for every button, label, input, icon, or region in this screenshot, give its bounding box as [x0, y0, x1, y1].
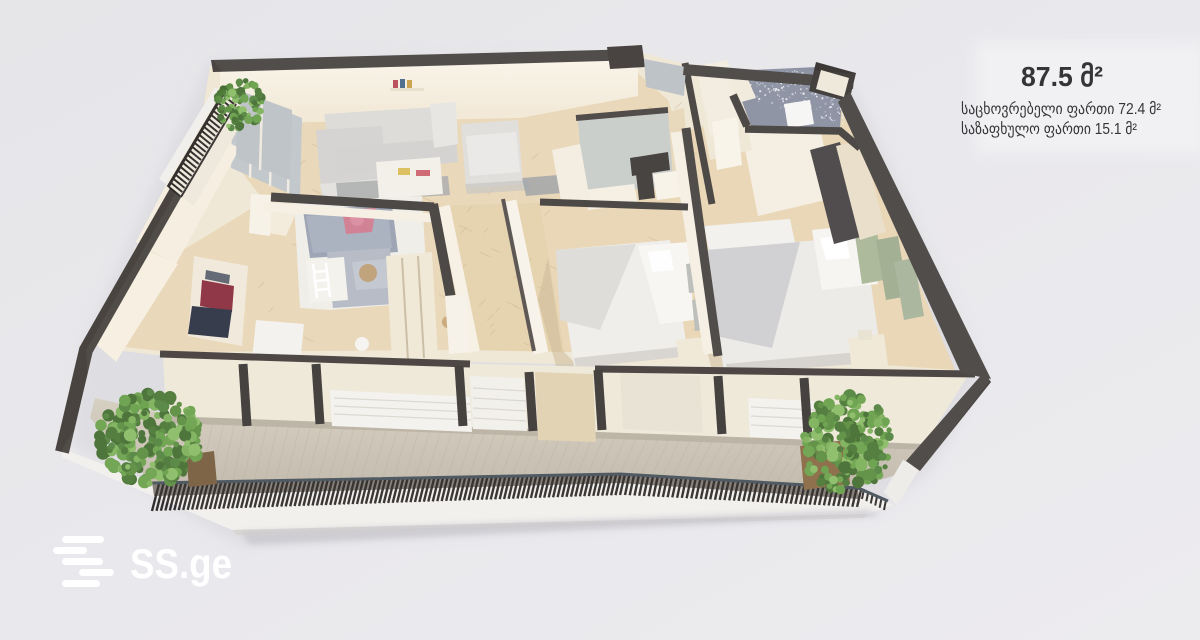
svg-text:საცხოვრებელი ფართი 72.4 მ²: საცხოვრებელი ფართი 72.4 მ² — [961, 100, 1161, 118]
svg-text:87.5 მ²: 87.5 მ² — [1021, 61, 1103, 92]
svg-text:SS.ge: SS.ge — [130, 540, 232, 587]
svg-text:საზაფხულო ფართი 15.1 მ²: საზაფხულო ფართი 15.1 მ² — [961, 120, 1137, 138]
